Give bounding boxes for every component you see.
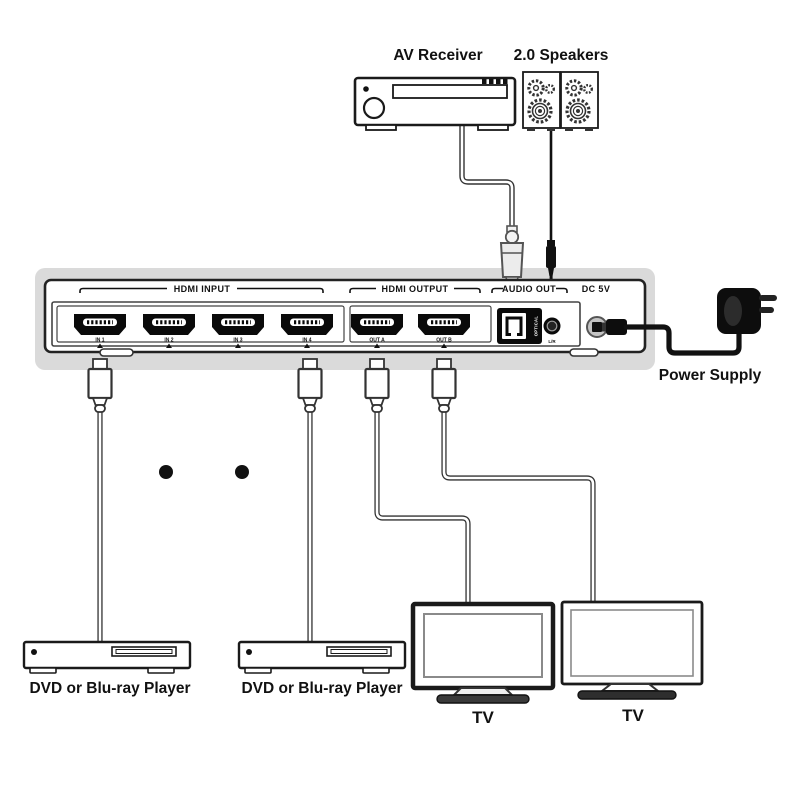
optical-port-label: OPTICAL bbox=[534, 316, 539, 337]
panel-tab bbox=[570, 349, 598, 356]
port-label-out-b: OUT B bbox=[436, 338, 452, 344]
dvd-player-2-label: DVD or Blu-ray Player bbox=[241, 680, 402, 697]
connection-diagram: HDMI INPUT HDMI OUTPUT AUDIO OUT DC 5V I… bbox=[0, 0, 800, 800]
av-receiver-device bbox=[355, 78, 515, 130]
panel-tab bbox=[100, 349, 133, 356]
speaker-cable bbox=[546, 129, 556, 286]
port-label-out-a: OUT A bbox=[369, 338, 385, 344]
player-foot bbox=[363, 668, 389, 673]
tv-screen bbox=[571, 610, 693, 676]
tv-stand-base bbox=[437, 695, 529, 703]
hdmi-output-section-label: HDMI OUTPUT bbox=[382, 284, 449, 294]
power-supply-label: Power Supply bbox=[659, 367, 762, 384]
tv-screen bbox=[424, 614, 542, 677]
lr-jack-label: L/R bbox=[548, 339, 556, 344]
receiver-foot bbox=[366, 125, 396, 130]
power-led-icon bbox=[31, 649, 37, 655]
volume-knob-icon bbox=[364, 98, 384, 118]
tv-stand-neck bbox=[454, 688, 512, 695]
port-label-in1: IN 1 bbox=[95, 338, 104, 344]
ellipsis-dots-icon bbox=[159, 465, 249, 479]
player-foot bbox=[245, 668, 271, 673]
speaker-right bbox=[561, 72, 598, 131]
diagram-canvas: HDMI INPUT HDMI OUTPUT AUDIO OUT DC 5V I… bbox=[0, 0, 800, 800]
port-label-in3: IN 3 bbox=[233, 338, 242, 344]
switch-front-panel: HDMI INPUT HDMI OUTPUT AUDIO OUT DC 5V I… bbox=[45, 280, 645, 356]
dvd-player-1-label: DVD or Blu-ray Player bbox=[29, 680, 190, 697]
wall-adapter-icon bbox=[717, 288, 777, 334]
dvd-player-1-device bbox=[24, 642, 190, 673]
player-foot bbox=[30, 668, 56, 673]
port-label-in4: IN 4 bbox=[302, 338, 311, 344]
tv-stand-base bbox=[578, 691, 676, 699]
av-receiver-label: AV Receiver bbox=[393, 47, 482, 64]
tv-stand-neck bbox=[602, 684, 658, 691]
optical-port: OPTICAL bbox=[497, 308, 542, 344]
dc-power-port bbox=[587, 317, 627, 337]
power-led-icon bbox=[246, 649, 252, 655]
tv-2-device bbox=[562, 602, 702, 699]
dc-5v-label: DC 5V bbox=[582, 284, 611, 294]
tv-2-label: TV bbox=[622, 706, 644, 725]
port-label-in2: IN 2 bbox=[164, 338, 173, 344]
optical-cable bbox=[462, 125, 523, 290]
speakers-label: 2.0 Speakers bbox=[514, 47, 609, 64]
dvd-player-2-device bbox=[239, 642, 405, 673]
power-led-icon bbox=[363, 86, 369, 92]
speakers-device bbox=[523, 72, 598, 131]
receiver-foot bbox=[478, 125, 508, 130]
hdmi-input-section-label: HDMI INPUT bbox=[174, 284, 231, 294]
speaker-left bbox=[523, 72, 560, 131]
receiver-display bbox=[393, 85, 507, 98]
player-foot bbox=[148, 668, 174, 673]
tv-1-label: TV bbox=[472, 708, 494, 727]
audio-out-section-label: AUDIO OUT bbox=[502, 284, 556, 294]
tv-1-device bbox=[413, 604, 553, 703]
